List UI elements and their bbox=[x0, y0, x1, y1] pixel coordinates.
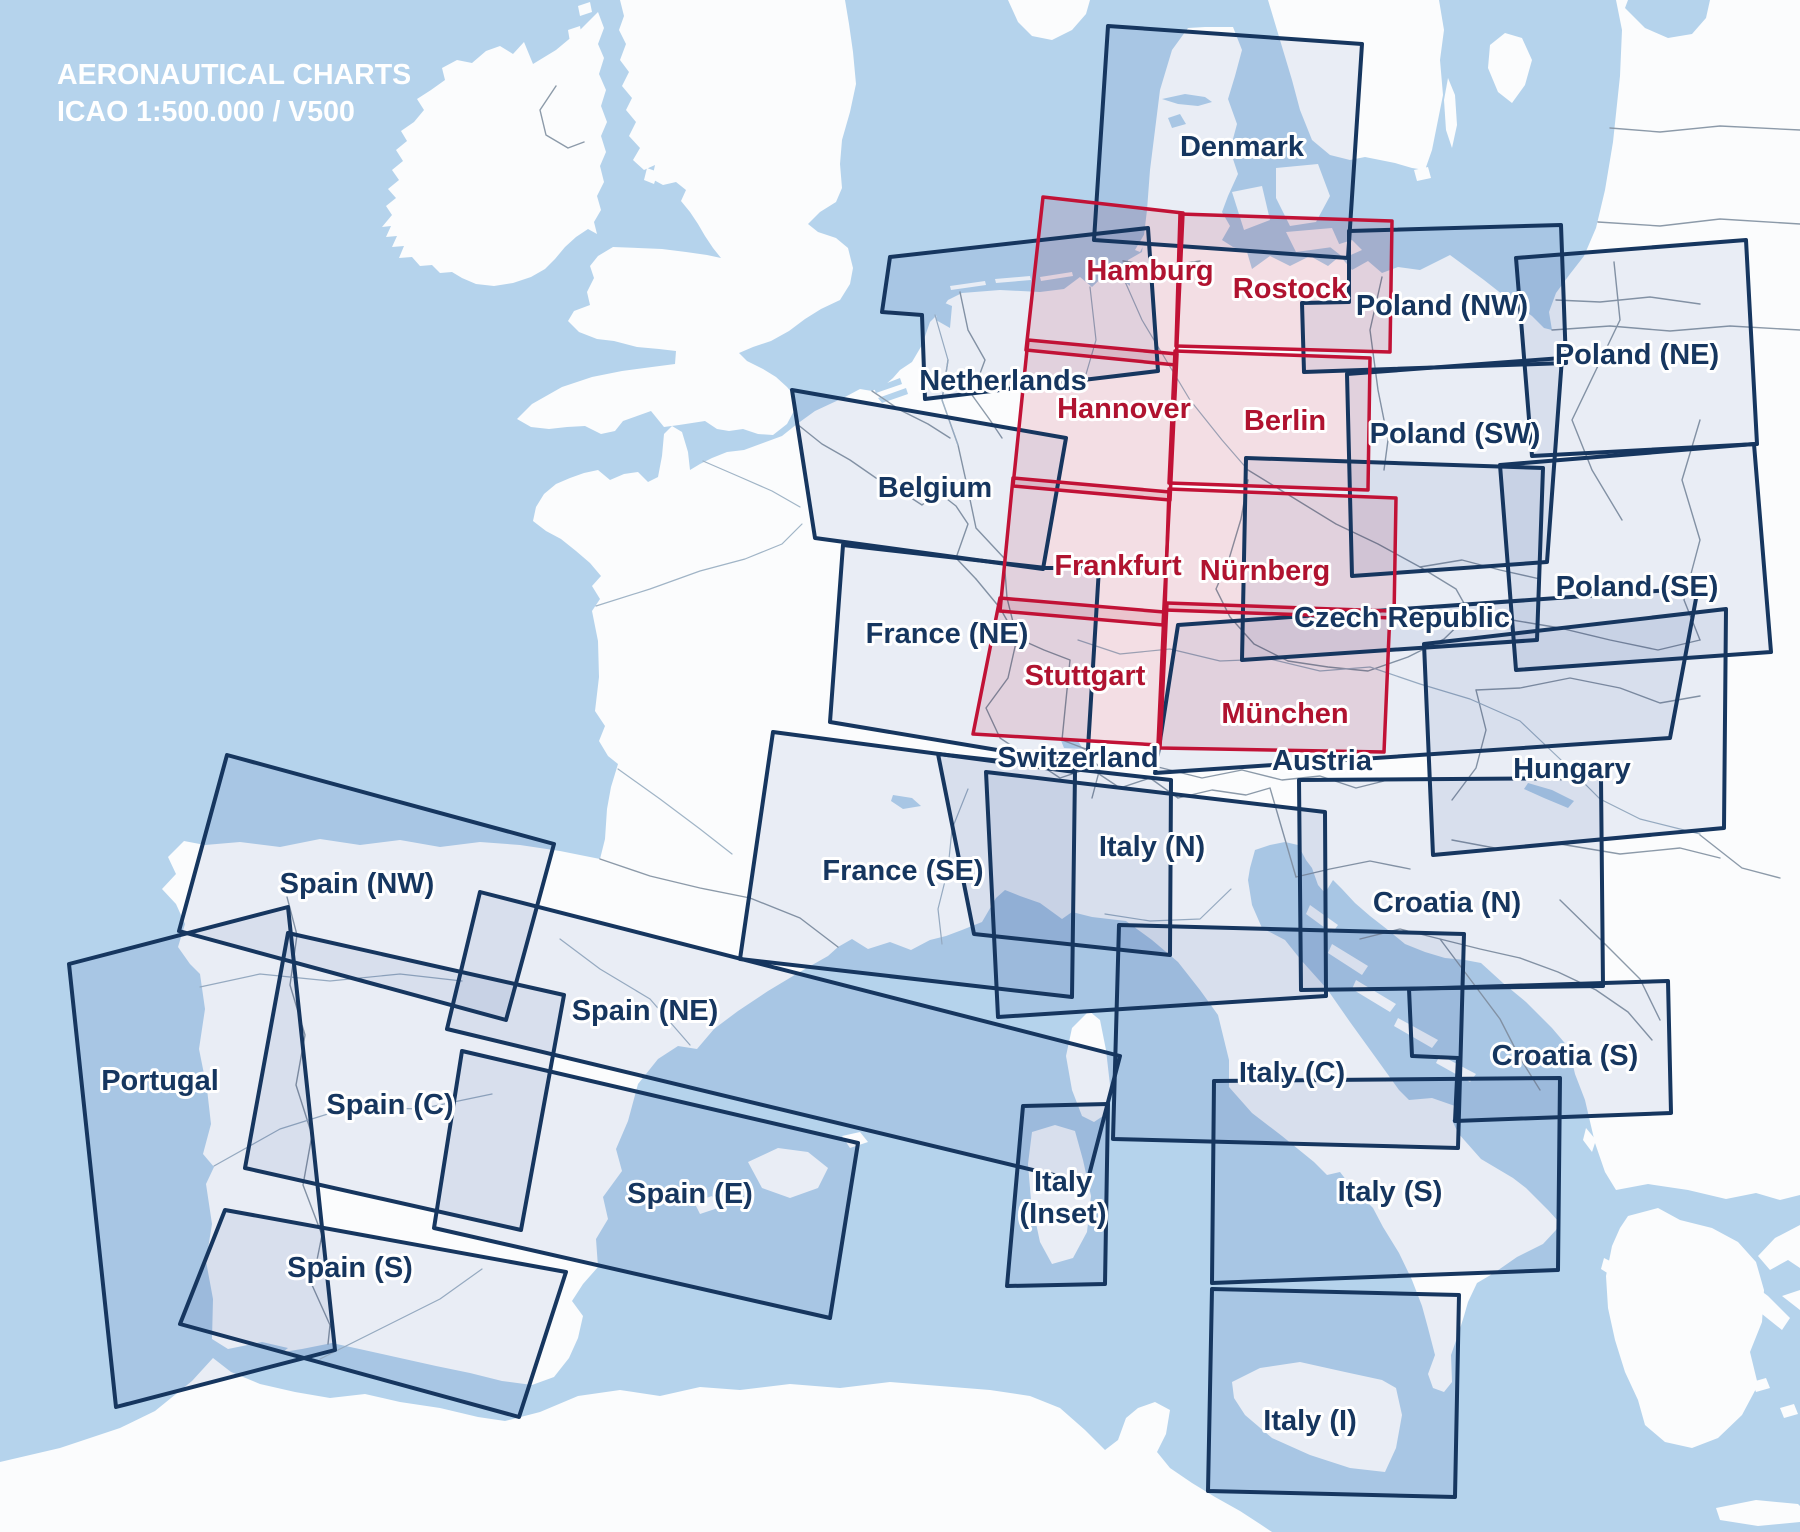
svg-text:France (NE): France (NE) bbox=[866, 618, 1029, 650]
svg-text:Poland (SW): Poland (SW) bbox=[1370, 418, 1541, 450]
svg-text:Croatia (S): Croatia (S) bbox=[1492, 1040, 1639, 1072]
svg-text:Nürnberg: Nürnberg bbox=[1200, 555, 1331, 587]
svg-text:(Inset): (Inset) bbox=[1020, 1198, 1107, 1230]
svg-text:Spain (NE): Spain (NE) bbox=[572, 995, 719, 1027]
svg-text:Spain (C): Spain (C) bbox=[326, 1089, 453, 1121]
svg-text:Italy: Italy bbox=[1034, 1166, 1092, 1198]
svg-text:Berlin: Berlin bbox=[1244, 405, 1326, 437]
svg-text:Frankfurt: Frankfurt bbox=[1054, 550, 1182, 582]
svg-text:Rostock: Rostock bbox=[1233, 273, 1348, 305]
svg-text:Spain (NW): Spain (NW) bbox=[280, 868, 435, 900]
svg-text:Czech Republic: Czech Republic bbox=[1294, 602, 1510, 634]
svg-text:Poland (NW): Poland (NW) bbox=[1356, 290, 1528, 322]
svg-text:Spain (S): Spain (S) bbox=[287, 1252, 413, 1284]
svg-text:France (SE): France (SE) bbox=[822, 855, 983, 887]
svg-text:Croatia (N): Croatia (N) bbox=[1373, 887, 1521, 919]
svg-text:Denmark: Denmark bbox=[1180, 131, 1305, 163]
svg-text:Hannover: Hannover bbox=[1057, 393, 1191, 425]
svg-text:München: München bbox=[1221, 698, 1348, 730]
svg-text:Spain (E): Spain (E) bbox=[627, 1178, 753, 1210]
svg-text:ICAO 1:500.000 / V500: ICAO 1:500.000 / V500 bbox=[57, 96, 355, 128]
svg-text:Stuttgart: Stuttgart bbox=[1025, 660, 1146, 692]
svg-text:Belgium: Belgium bbox=[878, 472, 992, 504]
svg-text:Italy (C): Italy (C) bbox=[1239, 1057, 1345, 1089]
svg-text:Switzerland: Switzerland bbox=[997, 742, 1158, 774]
svg-text:Poland (SE): Poland (SE) bbox=[1556, 571, 1719, 603]
svg-text:Austria: Austria bbox=[1272, 745, 1373, 777]
svg-text:Hamburg: Hamburg bbox=[1086, 255, 1213, 287]
svg-text:Poland (NE): Poland (NE) bbox=[1555, 339, 1719, 371]
svg-text:Hungary: Hungary bbox=[1513, 753, 1631, 785]
svg-text:Portugal: Portugal bbox=[101, 1065, 219, 1097]
svg-text:Italy (N): Italy (N) bbox=[1099, 831, 1205, 863]
svg-text:Italy (I): Italy (I) bbox=[1263, 1405, 1356, 1437]
svg-text:Italy (S): Italy (S) bbox=[1338, 1176, 1443, 1208]
svg-text:AERONAUTICAL CHARTS: AERONAUTICAL CHARTS bbox=[57, 59, 411, 91]
